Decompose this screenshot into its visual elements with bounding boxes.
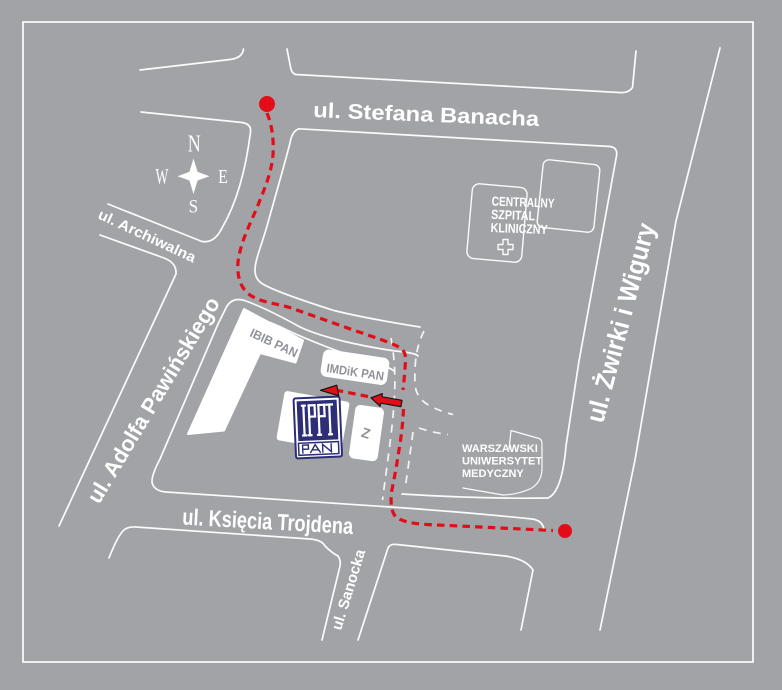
svg-text:E: E [218,165,228,187]
svg-text:W: W [156,164,169,188]
svg-text:MEDYCZNY: MEDYCZNY [462,468,524,480]
svg-text:N: N [188,130,201,157]
svg-text:S: S [189,196,199,217]
svg-text:KLINICZNY: KLINICZNY [490,220,548,237]
svg-text:WARSZAWSKI: WARSZAWSKI [462,443,538,455]
svg-text:UNIWERSYTET: UNIWERSYTET [462,456,542,468]
